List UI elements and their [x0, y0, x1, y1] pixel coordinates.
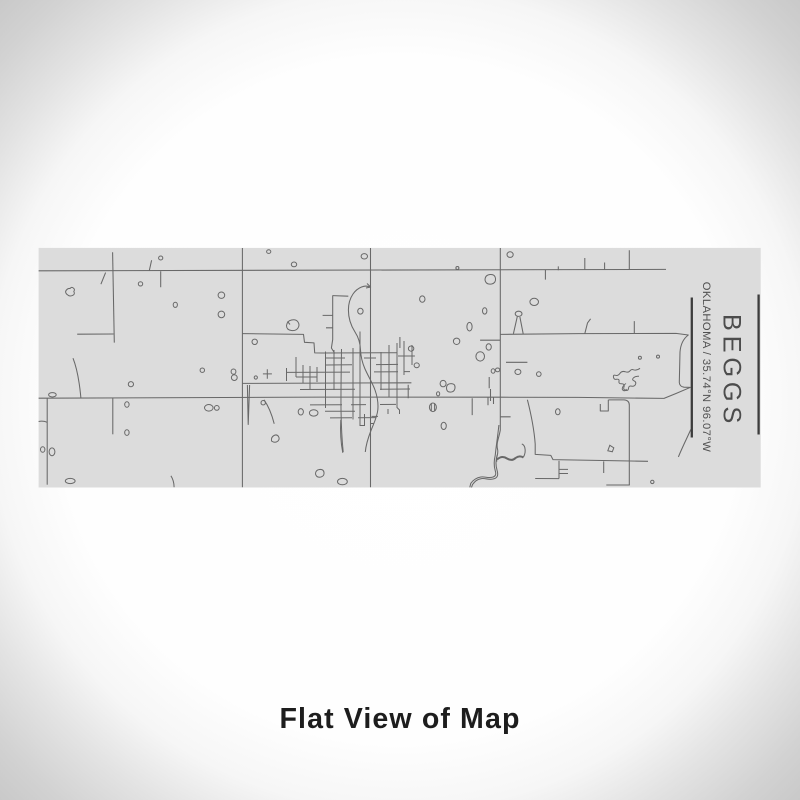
- svg-text:Flat View of Map: Flat View of Map: [279, 703, 520, 735]
